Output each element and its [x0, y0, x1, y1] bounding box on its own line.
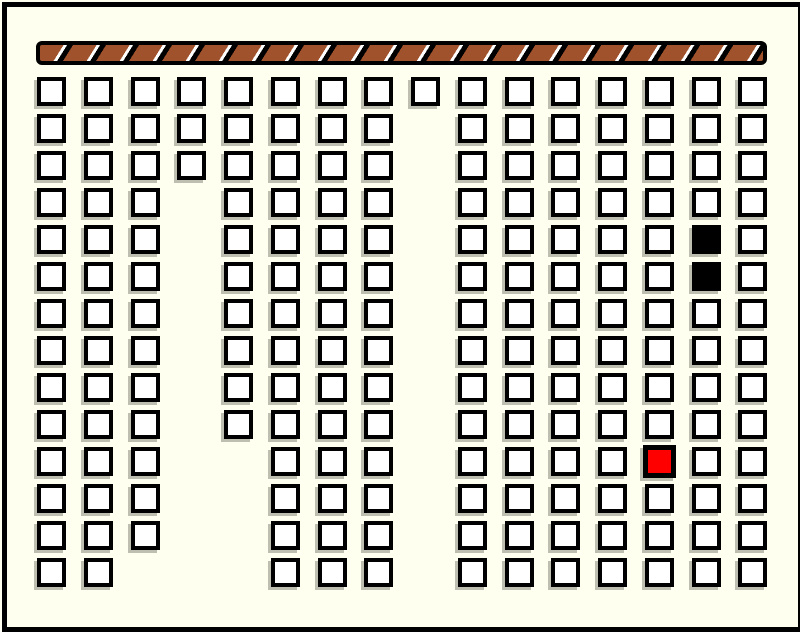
- seat[interactable]: [271, 558, 300, 587]
- seat[interactable]: [84, 447, 113, 476]
- seat[interactable]: [318, 521, 347, 550]
- seat[interactable]: [505, 262, 534, 291]
- seat[interactable]: [37, 373, 66, 402]
- seat[interactable]: [224, 188, 253, 217]
- seat[interactable]: [224, 225, 253, 254]
- seat[interactable]: [37, 336, 66, 365]
- seat-selected-red[interactable]: [643, 445, 676, 478]
- seat[interactable]: [84, 373, 113, 402]
- seat[interactable]: [364, 262, 393, 291]
- seat[interactable]: [692, 484, 721, 513]
- seat[interactable]: [645, 225, 674, 254]
- floor-plan: [0, 0, 800, 629]
- seat[interactable]: [37, 188, 66, 217]
- seat[interactable]: [598, 447, 627, 476]
- seat[interactable]: [37, 151, 66, 180]
- seat[interactable]: [37, 447, 66, 476]
- seat[interactable]: [458, 521, 487, 550]
- seat[interactable]: [271, 484, 300, 513]
- seat[interactable]: [224, 373, 253, 402]
- seat[interactable]: [692, 521, 721, 550]
- seat[interactable]: [692, 558, 721, 587]
- seat[interactable]: [318, 484, 347, 513]
- seat[interactable]: [84, 225, 113, 254]
- seat[interactable]: [505, 447, 534, 476]
- seat[interactable]: [37, 558, 66, 587]
- seat[interactable]: [738, 373, 767, 402]
- seat[interactable]: [551, 410, 580, 439]
- seat[interactable]: [738, 447, 767, 476]
- seat[interactable]: [271, 447, 300, 476]
- seat[interactable]: [458, 188, 487, 217]
- seat[interactable]: [271, 299, 300, 328]
- seat[interactable]: [458, 336, 487, 365]
- page-border-frame: [2, 2, 800, 632]
- seat[interactable]: [692, 336, 721, 365]
- seat[interactable]: [84, 188, 113, 217]
- seat[interactable]: [598, 558, 627, 587]
- seat[interactable]: [738, 188, 767, 217]
- seat[interactable]: [598, 484, 627, 513]
- seat[interactable]: [224, 262, 253, 291]
- seat[interactable]: [738, 410, 767, 439]
- seat[interactable]: [37, 77, 66, 106]
- seat[interactable]: [177, 114, 206, 143]
- seat[interactable]: [271, 151, 300, 180]
- seat[interactable]: [131, 447, 160, 476]
- seat[interactable]: [84, 521, 113, 550]
- seat[interactable]: [458, 262, 487, 291]
- seat[interactable]: [598, 114, 627, 143]
- seat[interactable]: [551, 262, 580, 291]
- seat[interactable]: [458, 225, 487, 254]
- seat[interactable]: [318, 151, 347, 180]
- seat[interactable]: [224, 299, 253, 328]
- seat[interactable]: [271, 521, 300, 550]
- seat[interactable]: [224, 77, 253, 106]
- seat[interactable]: [738, 114, 767, 143]
- seat[interactable]: [458, 77, 487, 106]
- seat[interactable]: [645, 299, 674, 328]
- seat[interactable]: [131, 151, 160, 180]
- seat[interactable]: [37, 410, 66, 439]
- seat[interactable]: [37, 521, 66, 550]
- seat[interactable]: [645, 410, 674, 439]
- seat[interactable]: [131, 373, 160, 402]
- seat-occupied-black[interactable]: [692, 225, 721, 254]
- seat[interactable]: [131, 225, 160, 254]
- seat[interactable]: [177, 77, 206, 106]
- seat[interactable]: [551, 114, 580, 143]
- seat[interactable]: [692, 410, 721, 439]
- seat[interactable]: [84, 484, 113, 513]
- seat[interactable]: [738, 336, 767, 365]
- seat[interactable]: [364, 188, 393, 217]
- seat[interactable]: [505, 225, 534, 254]
- seat[interactable]: [598, 77, 627, 106]
- seat[interactable]: [37, 299, 66, 328]
- seat[interactable]: [318, 410, 347, 439]
- seat[interactable]: [131, 484, 160, 513]
- seat[interactable]: [738, 225, 767, 254]
- seat[interactable]: [458, 114, 487, 143]
- seat[interactable]: [505, 410, 534, 439]
- seat[interactable]: [505, 114, 534, 143]
- seat[interactable]: [598, 521, 627, 550]
- seat[interactable]: [738, 262, 767, 291]
- seat[interactable]: [505, 188, 534, 217]
- seat[interactable]: [645, 151, 674, 180]
- seat[interactable]: [551, 77, 580, 106]
- seat[interactable]: [505, 521, 534, 550]
- seat[interactable]: [598, 299, 627, 328]
- seat[interactable]: [131, 410, 160, 439]
- seat[interactable]: [551, 373, 580, 402]
- seat[interactable]: [318, 447, 347, 476]
- seat[interactable]: [692, 151, 721, 180]
- seat[interactable]: [318, 262, 347, 291]
- seat[interactable]: [271, 77, 300, 106]
- seat[interactable]: [364, 77, 393, 106]
- seat[interactable]: [551, 336, 580, 365]
- seat[interactable]: [505, 558, 534, 587]
- seat[interactable]: [738, 558, 767, 587]
- seat[interactable]: [271, 225, 300, 254]
- seat[interactable]: [692, 114, 721, 143]
- seat[interactable]: [458, 447, 487, 476]
- seat[interactable]: [551, 484, 580, 513]
- seat[interactable]: [551, 558, 580, 587]
- seat[interactable]: [84, 114, 113, 143]
- seat[interactable]: [318, 188, 347, 217]
- seat[interactable]: [177, 151, 206, 180]
- seat[interactable]: [645, 77, 674, 106]
- seat[interactable]: [318, 114, 347, 143]
- seat[interactable]: [37, 114, 66, 143]
- seat[interactable]: [364, 114, 393, 143]
- seat[interactable]: [551, 151, 580, 180]
- seat[interactable]: [131, 299, 160, 328]
- seat[interactable]: [458, 373, 487, 402]
- seat[interactable]: [364, 521, 393, 550]
- seat[interactable]: [318, 299, 347, 328]
- seat[interactable]: [692, 188, 721, 217]
- seat[interactable]: [551, 521, 580, 550]
- seat[interactable]: [364, 558, 393, 587]
- seat[interactable]: [692, 373, 721, 402]
- seat[interactable]: [364, 484, 393, 513]
- seat[interactable]: [131, 336, 160, 365]
- seat[interactable]: [131, 188, 160, 217]
- seat[interactable]: [645, 373, 674, 402]
- seat[interactable]: [131, 521, 160, 550]
- seat[interactable]: [598, 373, 627, 402]
- seat[interactable]: [598, 151, 627, 180]
- seat[interactable]: [645, 188, 674, 217]
- seat[interactable]: [645, 558, 674, 587]
- seat[interactable]: [131, 262, 160, 291]
- seat[interactable]: [364, 151, 393, 180]
- seat[interactable]: [458, 410, 487, 439]
- seat[interactable]: [738, 521, 767, 550]
- seat[interactable]: [551, 447, 580, 476]
- seat[interactable]: [505, 151, 534, 180]
- seat[interactable]: [318, 336, 347, 365]
- seat[interactable]: [224, 336, 253, 365]
- seat[interactable]: [131, 114, 160, 143]
- seat[interactable]: [645, 484, 674, 513]
- seat[interactable]: [458, 558, 487, 587]
- seat[interactable]: [551, 188, 580, 217]
- seat[interactable]: [505, 299, 534, 328]
- seat[interactable]: [598, 262, 627, 291]
- seat[interactable]: [318, 225, 347, 254]
- seat[interactable]: [505, 77, 534, 106]
- seat[interactable]: [458, 299, 487, 328]
- seat[interactable]: [318, 558, 347, 587]
- seat[interactable]: [271, 410, 300, 439]
- seat[interactable]: [738, 77, 767, 106]
- seat[interactable]: [458, 151, 487, 180]
- seat[interactable]: [318, 373, 347, 402]
- seat[interactable]: [505, 336, 534, 365]
- seat[interactable]: [738, 299, 767, 328]
- seat[interactable]: [364, 447, 393, 476]
- seat[interactable]: [37, 484, 66, 513]
- seat[interactable]: [505, 373, 534, 402]
- seat[interactable]: [645, 262, 674, 291]
- seat[interactable]: [131, 77, 160, 106]
- seat[interactable]: [645, 114, 674, 143]
- seat[interactable]: [37, 262, 66, 291]
- seat[interactable]: [37, 225, 66, 254]
- seat[interactable]: [84, 299, 113, 328]
- seat[interactable]: [598, 410, 627, 439]
- seat[interactable]: [84, 558, 113, 587]
- seat[interactable]: [364, 336, 393, 365]
- seat[interactable]: [692, 299, 721, 328]
- seat[interactable]: [271, 262, 300, 291]
- seat[interactable]: [271, 336, 300, 365]
- seat[interactable]: [224, 151, 253, 180]
- seat[interactable]: [364, 410, 393, 439]
- seat[interactable]: [692, 77, 721, 106]
- seat[interactable]: [364, 299, 393, 328]
- seat[interactable]: [411, 77, 440, 106]
- seat[interactable]: [271, 188, 300, 217]
- seat[interactable]: [84, 77, 113, 106]
- seat[interactable]: [364, 225, 393, 254]
- seat[interactable]: [84, 410, 113, 439]
- seat[interactable]: [645, 521, 674, 550]
- seat[interactable]: [598, 225, 627, 254]
- seat[interactable]: [645, 336, 674, 365]
- seat[interactable]: [224, 410, 253, 439]
- front-wall-hatched-bar: [36, 41, 767, 65]
- seat[interactable]: [598, 336, 627, 365]
- seat[interactable]: [692, 447, 721, 476]
- seat[interactable]: [84, 151, 113, 180]
- seat[interactable]: [738, 484, 767, 513]
- seat[interactable]: [84, 262, 113, 291]
- seat[interactable]: [458, 484, 487, 513]
- seat[interactable]: [505, 484, 534, 513]
- seat[interactable]: [738, 151, 767, 180]
- seat[interactable]: [84, 336, 113, 365]
- seat[interactable]: [318, 77, 347, 106]
- seat[interactable]: [551, 225, 580, 254]
- seat[interactable]: [551, 299, 580, 328]
- seat[interactable]: [598, 188, 627, 217]
- seat[interactable]: [364, 373, 393, 402]
- seat[interactable]: [224, 114, 253, 143]
- seat-occupied-black[interactable]: [692, 262, 721, 291]
- seat[interactable]: [271, 373, 300, 402]
- seat[interactable]: [271, 114, 300, 143]
